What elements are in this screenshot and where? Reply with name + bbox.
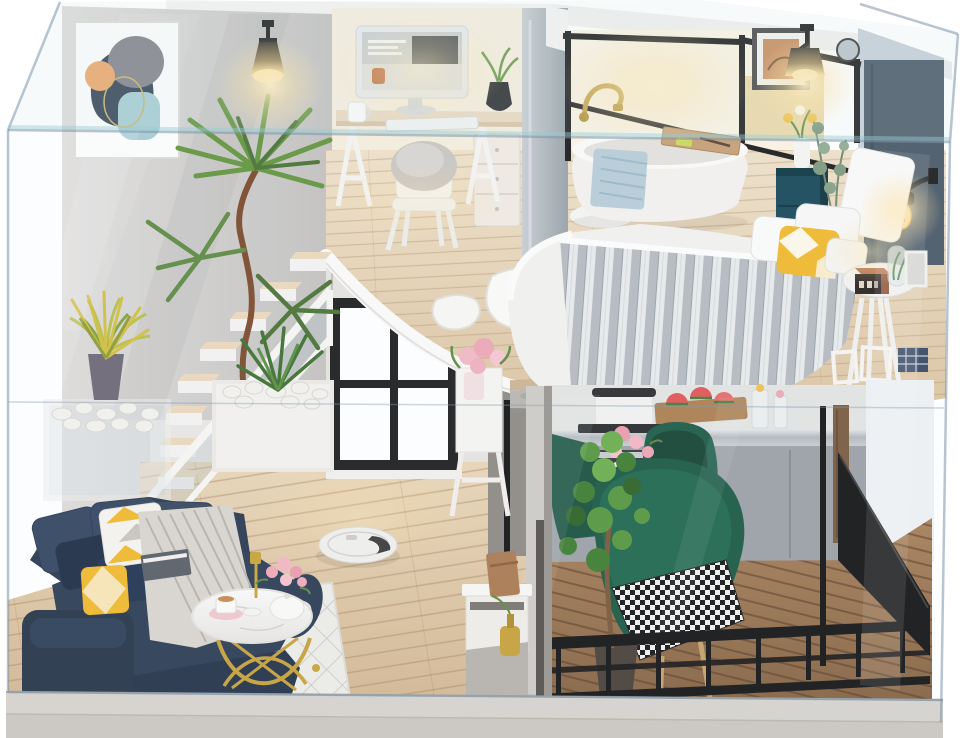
acrylic-display-case bbox=[8, 0, 958, 722]
case-front-face bbox=[8, 130, 950, 722]
case-top-face bbox=[8, 0, 958, 142]
dollhouse-product-photo bbox=[0, 0, 966, 738]
